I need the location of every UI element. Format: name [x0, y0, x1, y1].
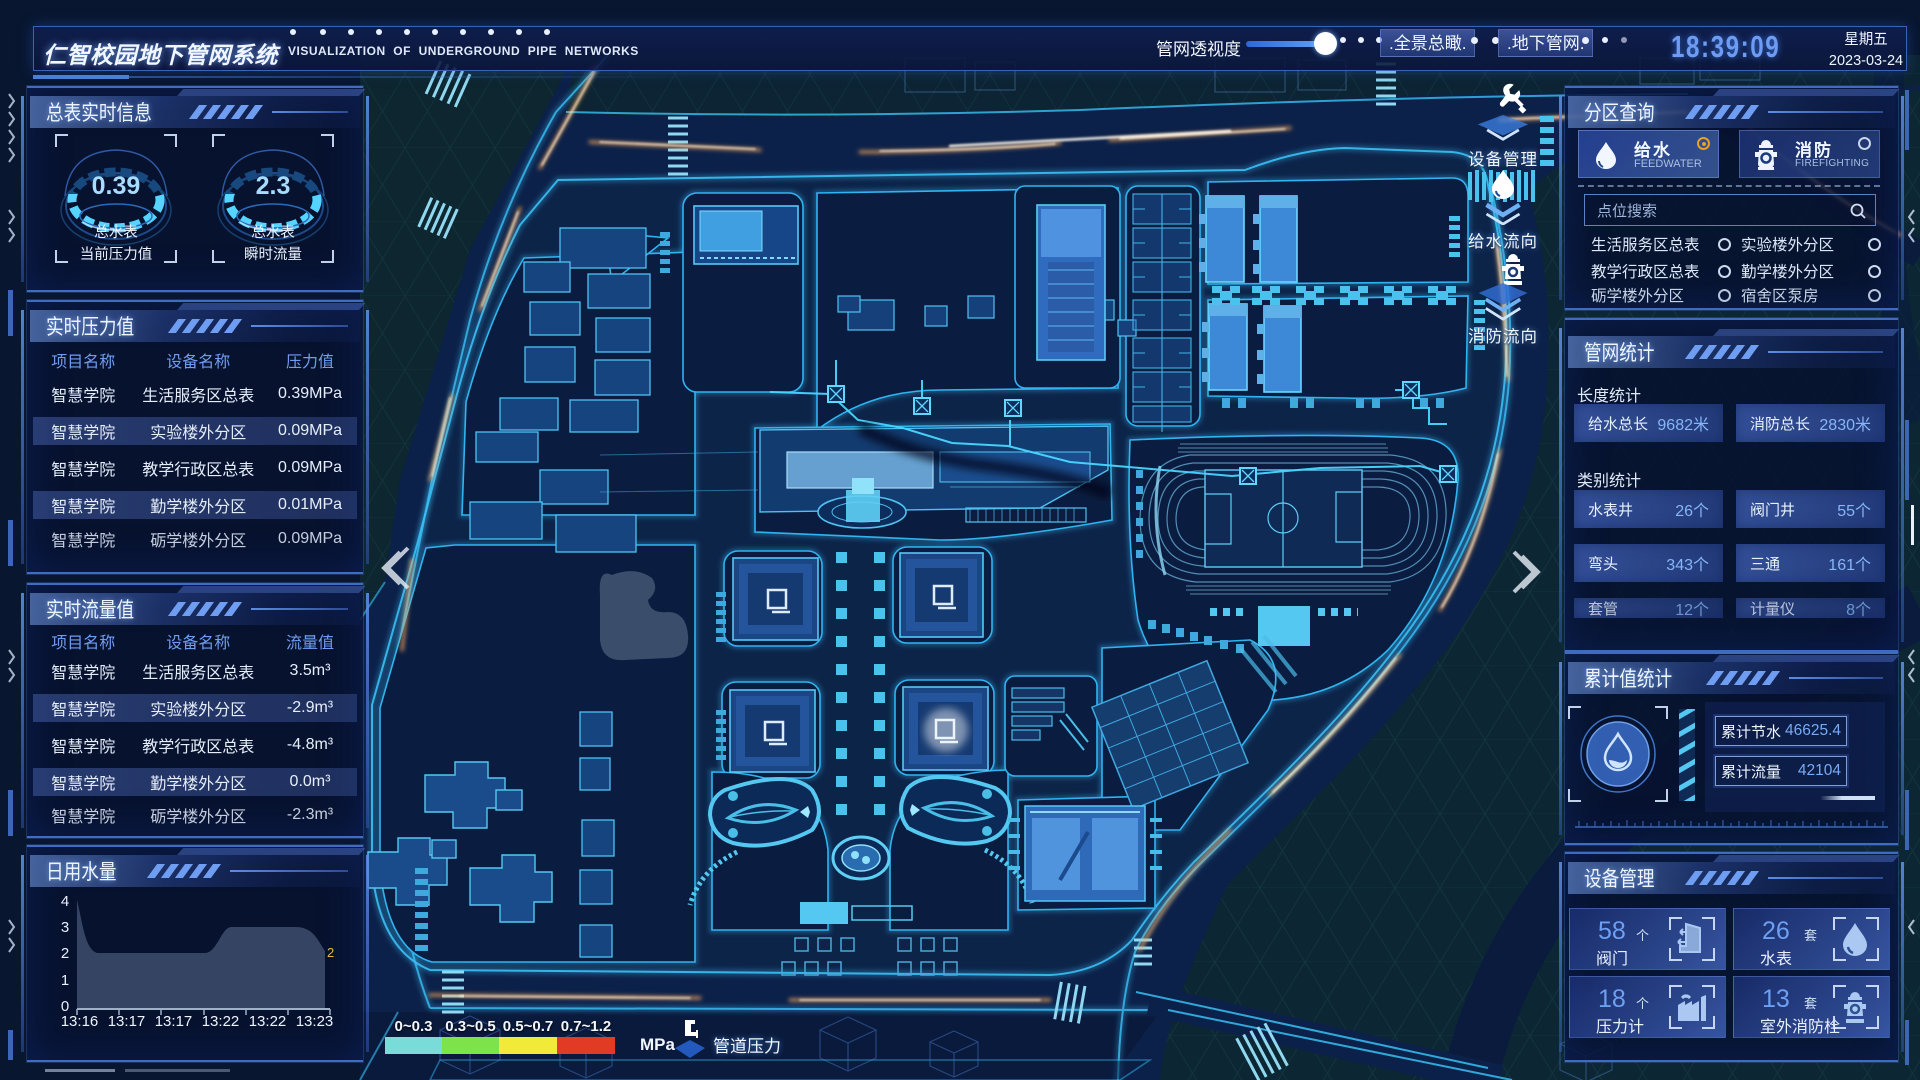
svg-text:2.3: 2.3 — [256, 172, 291, 200]
svg-text:2: 2 — [61, 945, 69, 962]
svg-text:2: 2 — [327, 945, 334, 960]
svg-text:0.39: 0.39 — [92, 172, 141, 200]
svg-text:3: 3 — [61, 919, 69, 936]
svg-text:4: 4 — [61, 893, 69, 910]
svg-text:1: 1 — [61, 972, 69, 989]
